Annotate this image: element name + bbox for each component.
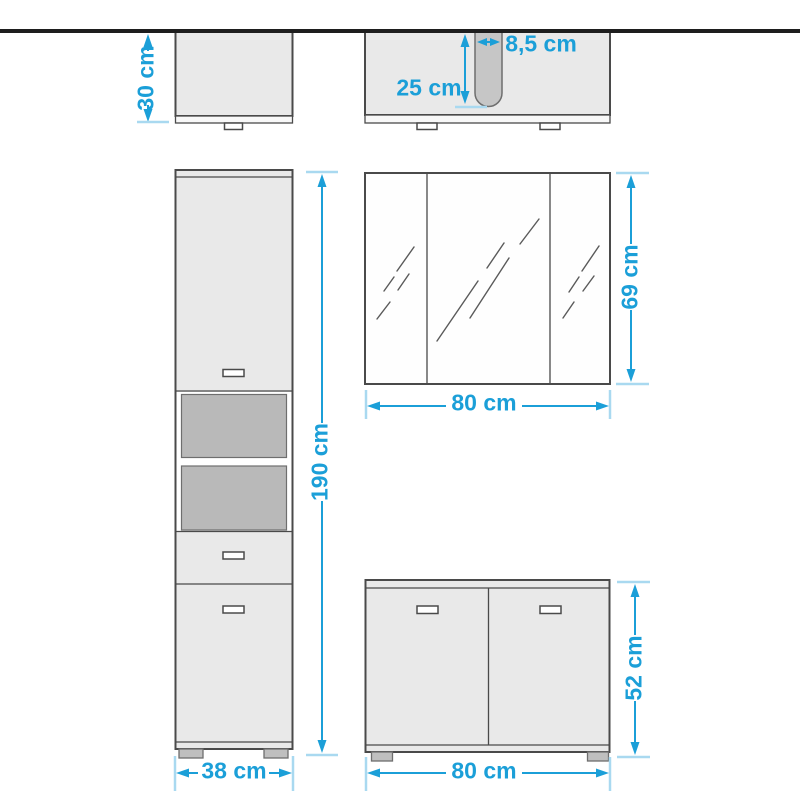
arrow-left-icon <box>367 769 380 778</box>
mirror-cabinet-body <box>365 173 610 384</box>
washbasin-cabinet-bottom-strip <box>365 115 610 123</box>
washbasin-cutout-width-label: 8,5 cm <box>505 33 577 56</box>
wall-cabinet-handle <box>225 123 243 130</box>
base-cabinet-handle-right <box>540 606 561 614</box>
wall-cabinet-height-label: 30 cm <box>135 45 158 110</box>
washbasin-handle-left <box>417 123 437 130</box>
tall-cabinet-foot-right <box>264 749 288 758</box>
wall-cabinet-body <box>176 31 293 116</box>
arrow-down-icon <box>631 742 640 755</box>
tall-cabinet-open-shelf-bottom <box>182 466 287 530</box>
tall-cabinet-door-handle-top <box>223 370 244 377</box>
arrow-up-icon <box>627 175 636 188</box>
tall-cabinet-open-shelf-top <box>182 395 287 458</box>
arrow-left-icon <box>176 769 189 778</box>
arrow-right-icon <box>596 402 609 411</box>
tall-cabinet-height-label: 190 cm <box>309 423 332 501</box>
wall-cabinet-bottom-strip <box>176 116 293 123</box>
tall-cabinet-door-handle-bottom <box>223 606 244 613</box>
arrow-down-icon <box>627 369 636 382</box>
tall-cabinet-foot-left <box>179 749 203 758</box>
base-cabinet-height-label: 52 cm <box>623 635 646 700</box>
base-cabinet <box>366 580 610 761</box>
tall-cabinet-drawer-handle <box>223 552 244 559</box>
washbasin-handle-right <box>540 123 560 130</box>
base-cabinet-body <box>366 580 610 752</box>
base-cabinet-foot-left <box>372 752 393 761</box>
furniture-dimension-diagram: 30 cm 25 cm 8,5 cm 190 cm 38 cm 69 cm 80… <box>0 0 800 800</box>
arrow-right-icon <box>279 769 292 778</box>
mirror-cabinet-height-label: 69 cm <box>619 244 642 309</box>
arrow-up-icon <box>631 584 640 597</box>
arrow-down-icon <box>318 740 327 753</box>
wall-cabinet <box>176 31 293 130</box>
washbasin-cutout-depth-label: 25 cm <box>396 77 461 100</box>
tall-cabinet <box>176 170 293 758</box>
furniture-diagram-canvas <box>0 0 800 800</box>
mirror-cabinet <box>365 173 610 384</box>
base-cabinet-width-label: 80 cm <box>451 760 516 783</box>
base-cabinet-foot-right <box>588 752 609 761</box>
mirror-cabinet-width-label: 80 cm <box>451 392 516 415</box>
tall-cabinet-width-label: 38 cm <box>201 760 266 783</box>
arrow-up-icon <box>318 174 327 187</box>
arrow-down-icon <box>144 109 153 122</box>
arrow-right-icon <box>596 769 609 778</box>
base-cabinet-handle-left <box>417 606 438 614</box>
arrow-left-icon <box>367 402 380 411</box>
